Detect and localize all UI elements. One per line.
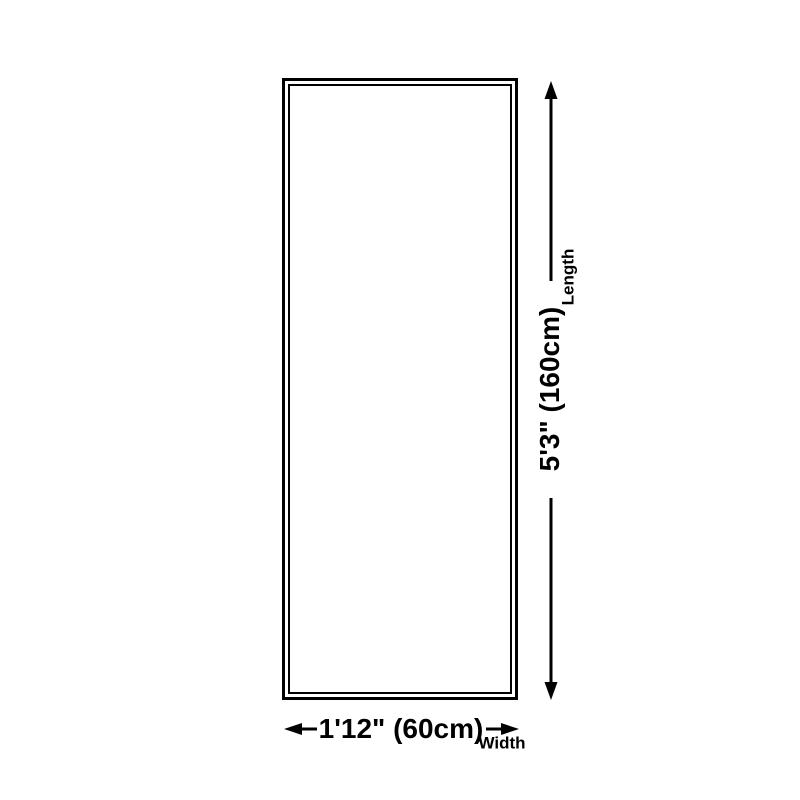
length-arrow-up-icon — [545, 81, 558, 281]
length-value-label: 5'3" (160cm) — [536, 307, 564, 472]
length-arrow-down-icon — [545, 498, 558, 700]
width-arrow-left-icon — [284, 723, 317, 735]
product-dimension-diagram: 5'3" (160cm) Length 1'12" (60cm) Width — [0, 0, 800, 800]
width-axis-label: Width — [478, 735, 525, 752]
dimension-arrows — [0, 0, 800, 800]
length-axis-label: Length — [560, 249, 577, 306]
width-value-label: 1'12" (60cm) — [319, 715, 484, 743]
